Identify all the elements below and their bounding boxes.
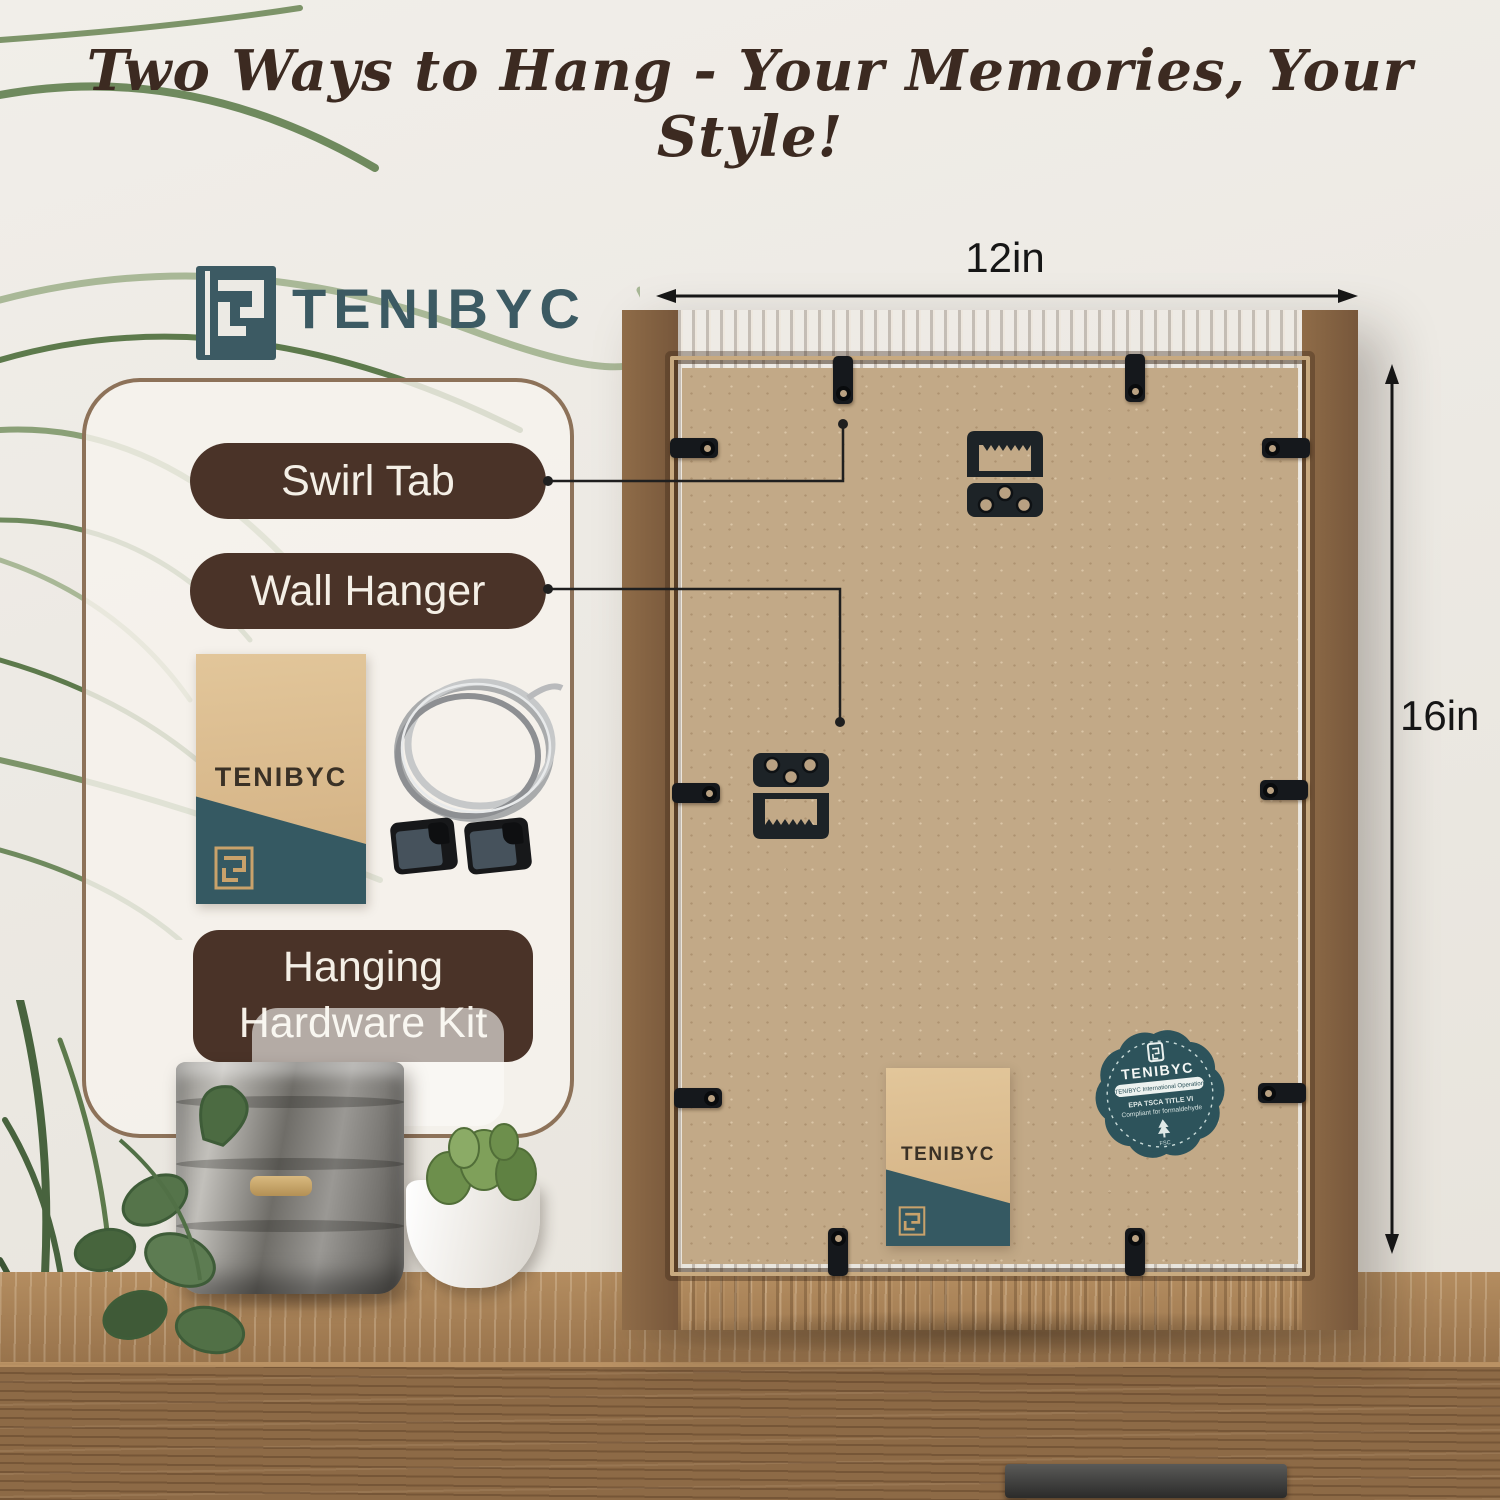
- height-dimension-label: 16in: [1400, 692, 1479, 740]
- swirl-tab-label: Swirl Tab: [281, 457, 455, 506]
- frame-envelope-logo-icon: [898, 1206, 926, 1236]
- swirl-tab: [674, 1088, 722, 1108]
- wall-hook-icon: [463, 817, 532, 875]
- wall-hook-icon: [389, 817, 458, 875]
- badge-cert: FSC: [1159, 1140, 1171, 1147]
- wall-hanger-label-pill: Wall Hanger: [190, 553, 546, 629]
- sawtooth-hanger-portrait-icon: [967, 431, 1043, 517]
- page-title: Two Ways to Hang - Your Memories, Your S…: [0, 38, 1500, 170]
- swirl-tab: [670, 438, 718, 458]
- pothos-plant-icon: [60, 1080, 380, 1380]
- swirl-tab: [833, 356, 853, 404]
- drawer-handle: [1005, 1464, 1287, 1498]
- kit-envelope: TENIBYC: [196, 654, 366, 904]
- swirl-tab: [1262, 438, 1310, 458]
- kit-envelope-logo-icon: [214, 846, 254, 890]
- frame-right-rail: [1302, 310, 1358, 1330]
- height-dimension-arrow: [1385, 364, 1399, 1254]
- frame-envelope-brand: TENIBYC: [886, 1144, 1010, 1166]
- brand-wordmark: TENIBYC: [292, 276, 587, 341]
- swirl-tab-label-pill: Swirl Tab: [190, 443, 546, 519]
- hanging-wire-icon: [378, 656, 573, 836]
- frame-envelope: TENIBYC: [886, 1068, 1010, 1246]
- width-dimension-label: 12in: [930, 234, 1080, 282]
- wall-hanger-label: Wall Hanger: [251, 567, 486, 616]
- sawtooth-hanger-landscape-icon: [748, 753, 834, 839]
- brand-logo-icon: [196, 266, 276, 360]
- swirl-tab: [672, 783, 720, 803]
- width-dimension-arrow: [656, 289, 1358, 303]
- succulent-plant-icon: [404, 1108, 554, 1218]
- swirl-tab: [1260, 780, 1308, 800]
- compliance-badge: TENIBYC TENIBYC International Operation …: [1087, 1021, 1232, 1166]
- swirl-tab: [1258, 1083, 1306, 1103]
- swirl-tab: [828, 1228, 848, 1276]
- swirl-tab: [1125, 354, 1145, 402]
- product-infographic: TENIBYC Swirl Tab Wall Hanger TENIBYC: [0, 0, 1500, 1500]
- swirl-tab: [1125, 1228, 1145, 1276]
- kit-envelope-brand: TENIBYC: [196, 762, 366, 793]
